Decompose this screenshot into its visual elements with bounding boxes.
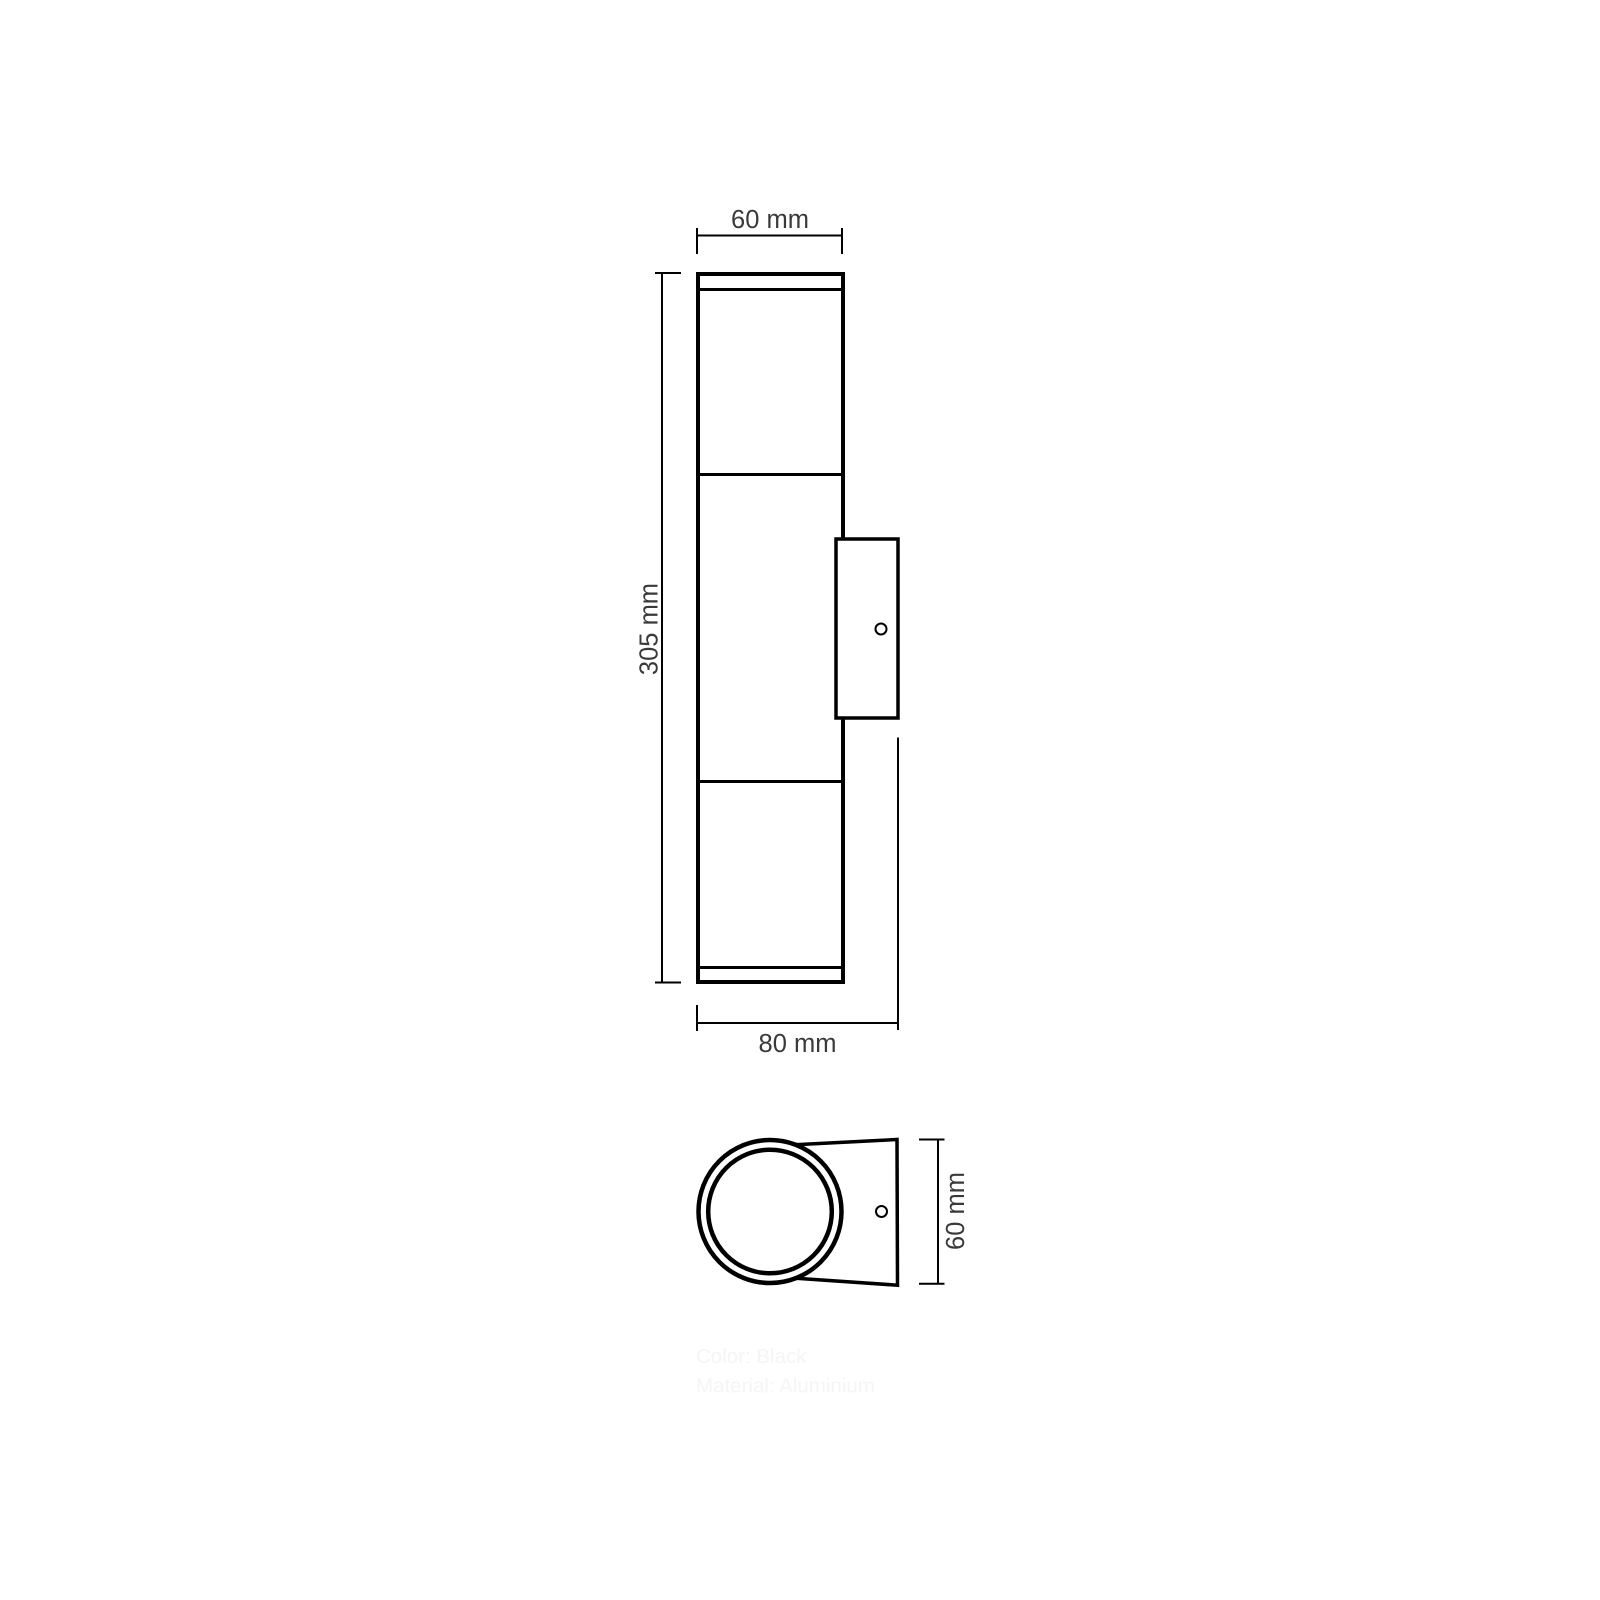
svg-text:Material: Aluminium: Material: Aluminium xyxy=(696,1375,875,1398)
svg-text:305 mm: 305 mm xyxy=(636,583,664,675)
svg-text:60 mm: 60 mm xyxy=(942,1172,970,1250)
svg-text:80 mm: 80 mm xyxy=(759,1030,837,1058)
svg-text:60 mm: 60 mm xyxy=(731,206,809,234)
svg-text:Color: Black: Color: Black xyxy=(696,1345,807,1368)
